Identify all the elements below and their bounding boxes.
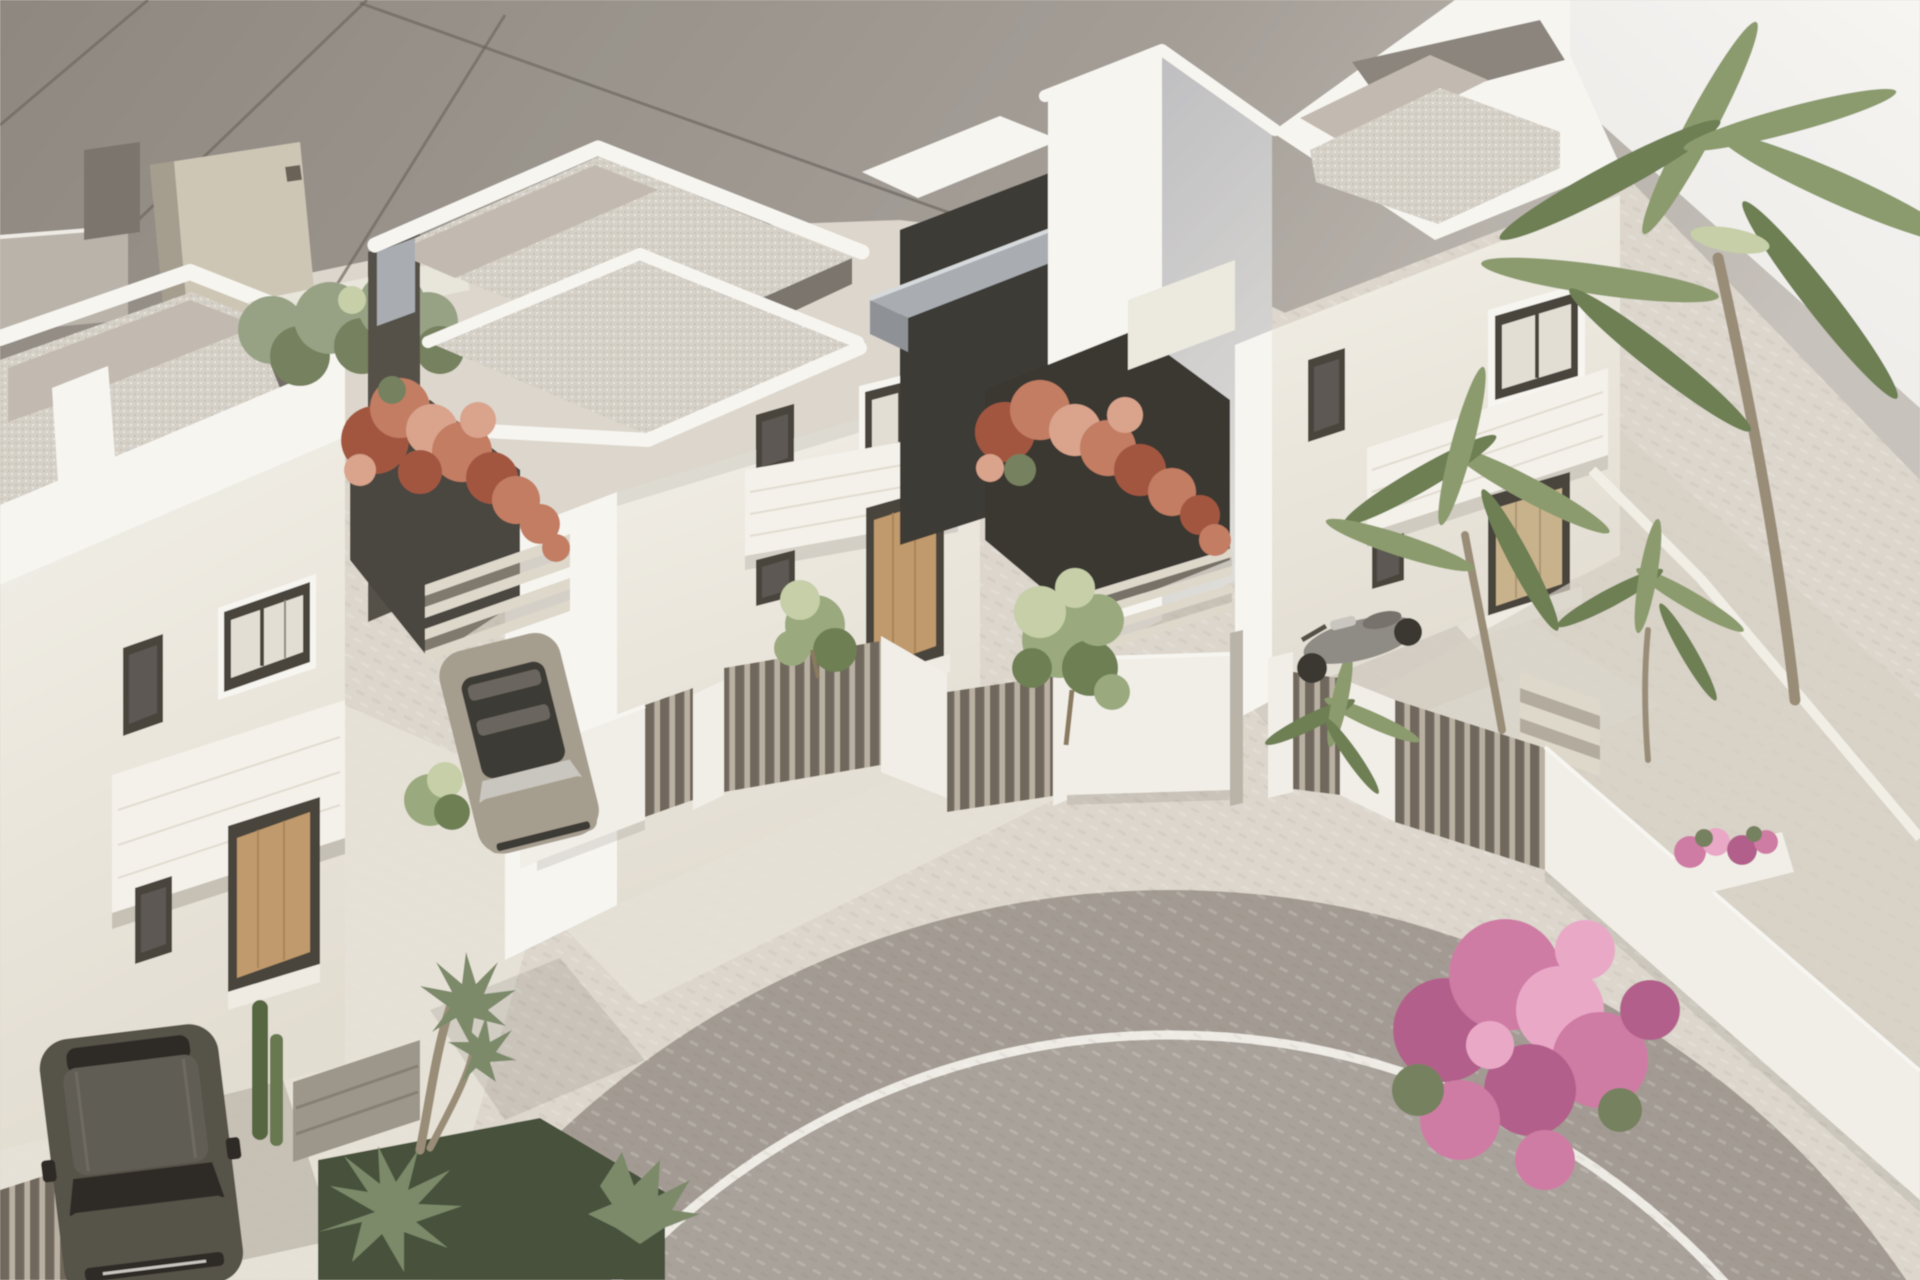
columnar-cactus: [252, 1000, 268, 1140]
roof-railing: [377, 238, 415, 326]
timber-slat-gate: [947, 676, 1053, 812]
gate-post: [1230, 630, 1243, 806]
suv-mirror-left: [41, 1159, 58, 1183]
chimney-vent: [285, 165, 302, 182]
suv-mirror-right: [225, 1137, 242, 1161]
suv-roof: [62, 1053, 210, 1177]
white-wall: [693, 680, 724, 810]
front-door: [237, 812, 310, 978]
motorcycle-front-wheel: [1297, 653, 1327, 683]
motorcycle-rear-wheel: [1394, 618, 1422, 646]
scene-svg: [0, 0, 1920, 1280]
architectural-render-canvas: [0, 0, 1920, 1280]
timber-slat-gate: [645, 688, 693, 817]
neighbor-pillar: [84, 142, 140, 240]
